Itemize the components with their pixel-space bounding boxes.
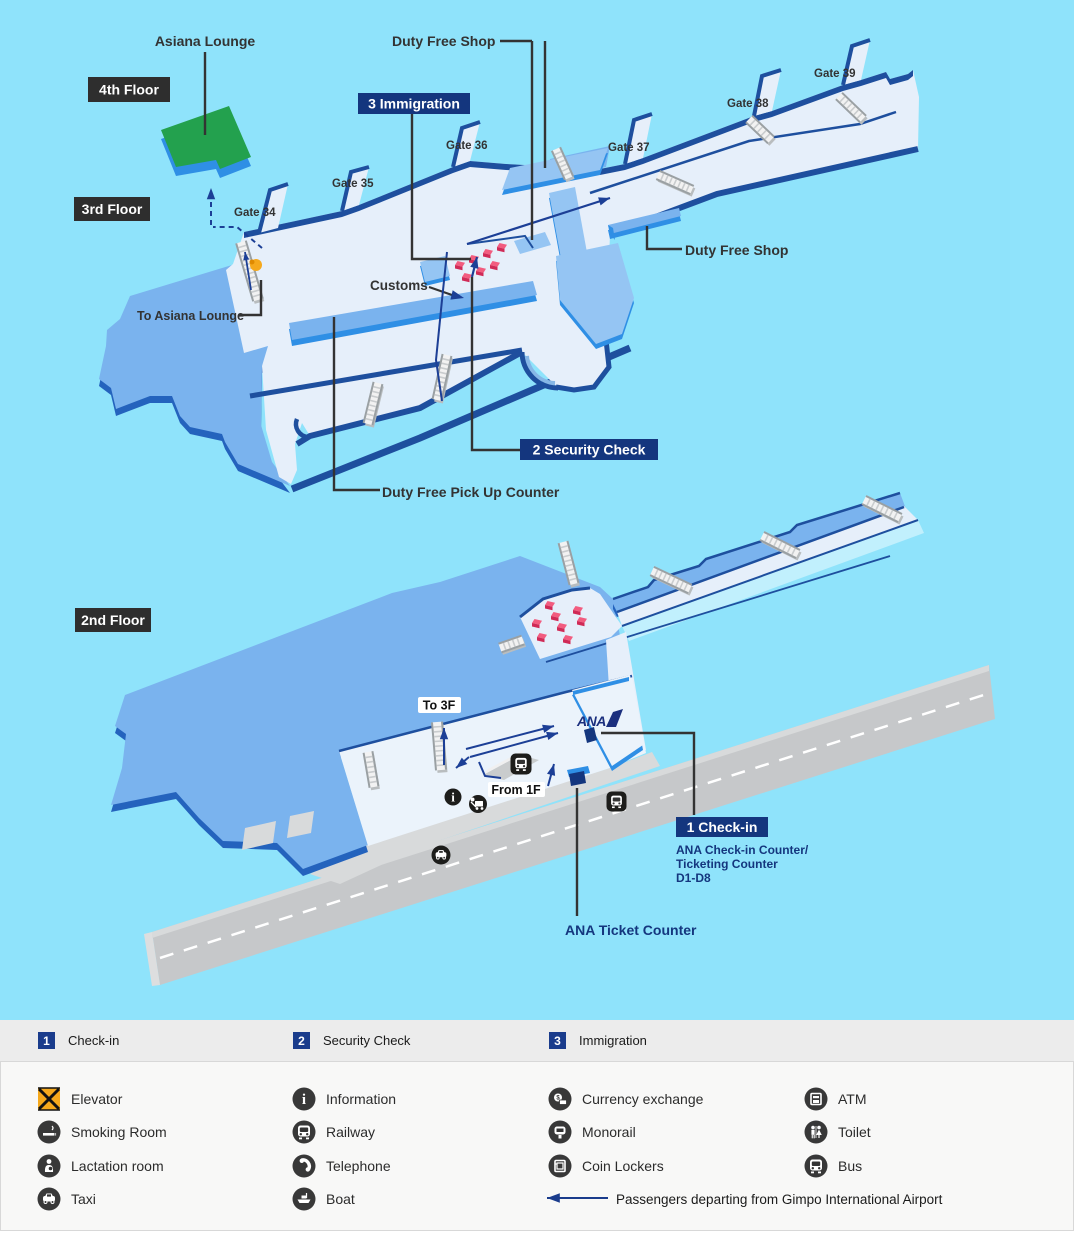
svg-text:Toilet: Toilet: [838, 1124, 871, 1140]
svg-text:ANA Check-in Counter/: ANA Check-in Counter/: [676, 843, 809, 857]
svg-text:Passengers departing from Gimp: Passengers departing from Gimpo Internat…: [616, 1192, 943, 1207]
svg-text:Gate 34: Gate 34: [234, 207, 276, 219]
svg-text:Elevator: Elevator: [71, 1091, 123, 1107]
svg-text:Telephone: Telephone: [326, 1158, 391, 1174]
svg-text:Gate 39: Gate 39: [814, 68, 856, 80]
svg-text:i: i: [451, 790, 455, 805]
svg-text:Gate 36: Gate 36: [446, 140, 488, 152]
svg-text:Smoking Room: Smoking Room: [71, 1124, 167, 1140]
svg-text:2 Security Check: 2 Security Check: [533, 442, 646, 458]
svg-text:Boat: Boat: [326, 1191, 355, 1207]
svg-text:i: i: [302, 1092, 306, 1108]
svg-text:1 Check-in: 1 Check-in: [687, 819, 758, 835]
svg-text:Check-in: Check-in: [68, 1033, 119, 1048]
svg-text:4th Floor: 4th Floor: [99, 82, 159, 98]
svg-text:Coin Lockers: Coin Lockers: [582, 1158, 664, 1174]
svg-text:Immigration: Immigration: [579, 1033, 647, 1048]
svg-text:3rd Floor: 3rd Floor: [82, 201, 143, 217]
svg-text:Duty Free Shop: Duty Free Shop: [685, 242, 788, 258]
svg-text:Duty Free Shop: Duty Free Shop: [392, 33, 495, 49]
svg-text:To 3F: To 3F: [423, 699, 456, 713]
svg-text:2nd Floor: 2nd Floor: [81, 612, 145, 628]
svg-text:To Asiana Lounge: To Asiana Lounge: [137, 309, 244, 323]
svg-text:3 Immigration: 3 Immigration: [368, 96, 460, 112]
svg-text:ANA Ticket Counter: ANA Ticket Counter: [565, 922, 697, 938]
svg-text:Ticketing Counter: Ticketing Counter: [676, 857, 778, 871]
svg-text:Gate 35: Gate 35: [332, 178, 374, 190]
svg-text:3: 3: [554, 1034, 561, 1048]
svg-text:Lactation room: Lactation room: [71, 1158, 164, 1174]
svg-text:From 1F: From 1F: [491, 783, 541, 797]
svg-text:Railway: Railway: [326, 1124, 375, 1140]
svg-text:Bus: Bus: [838, 1158, 862, 1174]
svg-text:D1-D8: D1-D8: [676, 871, 711, 885]
svg-text:Asiana Lounge: Asiana Lounge: [155, 33, 256, 49]
svg-text:Customs: Customs: [370, 278, 428, 293]
svg-text:Gate 38: Gate 38: [727, 98, 769, 110]
svg-text:Duty Free Pick Up Counter: Duty Free Pick Up Counter: [382, 484, 560, 500]
svg-text:Gate 37: Gate 37: [608, 142, 650, 154]
svg-text:Information: Information: [326, 1091, 396, 1107]
svg-text:Currency exchange: Currency exchange: [582, 1091, 704, 1107]
svg-text:1: 1: [43, 1034, 50, 1048]
svg-text:ANA: ANA: [576, 713, 606, 729]
svg-text:Monorail: Monorail: [582, 1124, 636, 1140]
svg-text:Security Check: Security Check: [323, 1033, 411, 1048]
svg-text:ATM: ATM: [838, 1091, 867, 1107]
svg-text:2: 2: [298, 1034, 305, 1048]
svg-text:Taxi: Taxi: [71, 1191, 96, 1207]
